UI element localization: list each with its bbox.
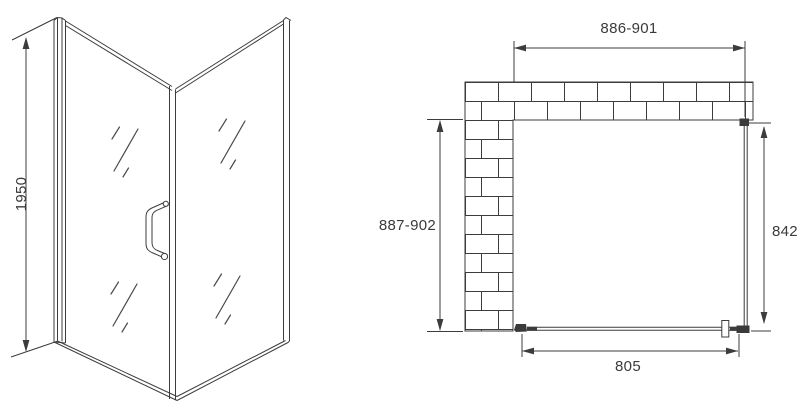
wall-profile-post (54, 18, 66, 344)
height-dimension-label: 1950 (14, 164, 30, 224)
door-glass-dimension (522, 334, 739, 357)
door-panel (54, 21, 177, 401)
brick-wall (465, 82, 753, 331)
technical-drawing-canvas: 1950 886-901 887-902 842 805 (0, 0, 800, 409)
plan-side-panel-glass (740, 119, 750, 328)
plan-view (427, 41, 771, 357)
perspective-view (11, 18, 291, 401)
glass-shine-marks (111, 119, 245, 332)
drawing-line-art (0, 0, 800, 409)
side-panel-dimension (749, 123, 771, 331)
side-panel-dimension-label: 842 (772, 224, 798, 240)
plan-door-handle (722, 321, 729, 338)
side-panel (176, 18, 292, 401)
door-glass-dimension-label: 805 (553, 359, 703, 375)
opening-depth-dimension-label: 887-902 (306, 218, 436, 234)
door-handle (146, 201, 168, 259)
plan-door-glass (514, 321, 750, 338)
opening-width-dimension-label: 886-901 (554, 21, 704, 37)
